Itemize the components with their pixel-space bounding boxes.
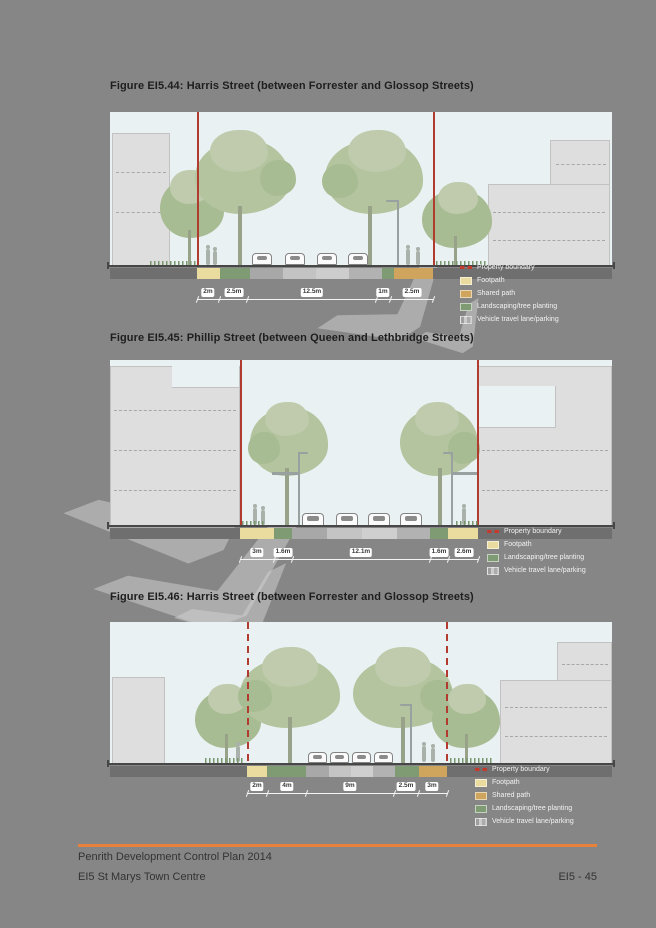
dimension-label: 2.5m bbox=[403, 288, 422, 297]
building-floor-line bbox=[116, 172, 166, 173]
legend-label: Shared path bbox=[492, 792, 530, 799]
tree-trunk bbox=[401, 717, 405, 764]
car bbox=[330, 752, 349, 763]
car bbox=[374, 752, 393, 763]
building-right-lower bbox=[488, 184, 610, 267]
dimension-label: 3m bbox=[425, 782, 438, 791]
tree-canopy bbox=[262, 647, 318, 687]
building-floor-line bbox=[505, 707, 607, 708]
legend-swatch-vehicle-lane bbox=[475, 818, 487, 826]
car bbox=[308, 752, 327, 763]
building-floor-line bbox=[482, 490, 608, 491]
property-boundary-line bbox=[477, 360, 479, 527]
dimension-label: 2.5m bbox=[397, 782, 416, 791]
legend-row: Shared path bbox=[460, 289, 559, 298]
legend-swatch-landscaping bbox=[460, 303, 472, 311]
building-floor-line bbox=[562, 664, 608, 665]
legend-label: Property boundary bbox=[504, 528, 562, 535]
legend-row: Footpath bbox=[475, 778, 574, 787]
footpath-band bbox=[448, 528, 478, 539]
property-boundary-line bbox=[446, 622, 448, 765]
dimension-label: 3m bbox=[250, 548, 263, 557]
footer-rule bbox=[78, 844, 597, 847]
tree-canopy bbox=[348, 130, 406, 172]
legend-label: Property boundary bbox=[477, 264, 535, 271]
legend-row: Footpath bbox=[460, 276, 559, 285]
pedestrian bbox=[431, 748, 435, 762]
footpath-band bbox=[247, 766, 267, 777]
tree-trunk bbox=[288, 717, 292, 764]
landscaping-band bbox=[267, 766, 306, 777]
legend-swatch-shared-path bbox=[475, 792, 487, 800]
dimension-line bbox=[240, 559, 478, 560]
property-boundary-line bbox=[197, 112, 199, 267]
legend-row: Footpath bbox=[487, 540, 586, 549]
street-light-arm bbox=[298, 452, 308, 454]
tree-canopy bbox=[248, 432, 280, 464]
road-band bbox=[349, 268, 382, 279]
street-light-pole bbox=[410, 704, 412, 764]
legend-row: Vehicle travel lane/parking bbox=[460, 315, 559, 324]
legend-label: Landscaping/tree planting bbox=[477, 303, 557, 310]
legend-label: Property boundary bbox=[492, 766, 550, 773]
legend-label: Footpath bbox=[477, 277, 505, 284]
pedestrian bbox=[206, 249, 210, 265]
tree-canopy bbox=[210, 130, 268, 172]
street-light-pole bbox=[451, 452, 453, 526]
legend-swatch-footpath bbox=[475, 779, 487, 787]
car bbox=[352, 752, 371, 763]
legend-row: Property boundary bbox=[487, 527, 586, 536]
car bbox=[317, 253, 337, 265]
legend-row: Vehicle travel lane/parking bbox=[475, 817, 574, 826]
legend-row: Landscaping/tree planting bbox=[487, 553, 586, 562]
dimension-label: 12.1m bbox=[350, 548, 372, 557]
legend-swatch-shared-path bbox=[460, 290, 472, 298]
dimension-label: 12.5m bbox=[301, 288, 323, 297]
building-floor-line bbox=[114, 490, 236, 491]
legend-row: Vehicle travel lane/parking bbox=[487, 566, 586, 575]
street-light-bracket bbox=[452, 472, 478, 475]
figure-3-legend: Property boundary Footpath Shared path L… bbox=[475, 765, 574, 830]
road-band bbox=[351, 766, 373, 777]
tree-canopy bbox=[238, 680, 272, 712]
building-left-setback bbox=[172, 366, 240, 388]
building-floor-line bbox=[116, 212, 166, 213]
dimension-label: 2.5m bbox=[225, 288, 244, 297]
building-floor-line bbox=[493, 240, 605, 241]
building-floor-line bbox=[556, 164, 606, 165]
tree-canopy bbox=[438, 182, 478, 214]
road-band bbox=[327, 528, 362, 539]
street-light-pole bbox=[397, 200, 399, 266]
figure-2-cross-section bbox=[110, 360, 612, 540]
tree-canopy bbox=[322, 164, 358, 198]
legend-row: Property boundary bbox=[460, 263, 559, 272]
tree-canopy bbox=[265, 402, 309, 436]
road-band bbox=[373, 766, 395, 777]
dimension-label: 1.6m bbox=[430, 548, 449, 557]
ground-end-tick bbox=[107, 262, 109, 269]
dimension-line bbox=[197, 299, 433, 300]
legend-swatch-landscaping bbox=[475, 805, 487, 813]
landscaping-band bbox=[430, 528, 448, 539]
legend-row: Property boundary bbox=[475, 765, 574, 774]
street-light-arm bbox=[400, 704, 411, 706]
tree-trunk bbox=[285, 468, 289, 526]
legend-label: Vehicle travel lane/parking bbox=[504, 567, 586, 574]
dimension-tick bbox=[446, 790, 450, 797]
footer-section-title: EI5 St Marys Town Centre bbox=[78, 871, 206, 883]
road-band bbox=[362, 528, 397, 539]
dimension-label: 1m bbox=[376, 288, 389, 297]
property-boundary-line bbox=[240, 360, 242, 527]
figure-1-title: Figure EI5.44: Harris Street (between Fo… bbox=[110, 80, 590, 92]
car bbox=[285, 253, 305, 265]
legend-label: Shared path bbox=[477, 290, 515, 297]
building-floor-line bbox=[505, 736, 607, 737]
road-band bbox=[250, 268, 283, 279]
dimension-label: 1.6m bbox=[274, 548, 293, 557]
footer-page-number: EI5 - 45 bbox=[480, 871, 597, 883]
pedestrian bbox=[422, 746, 426, 762]
footpath-band bbox=[240, 528, 274, 539]
street-light-pole bbox=[298, 452, 300, 526]
legend-label: Landscaping/tree planting bbox=[492, 805, 572, 812]
legend-swatch-landscaping bbox=[487, 554, 499, 562]
legend-swatch-property-boundary bbox=[460, 266, 472, 269]
dimension-label: 4m bbox=[280, 782, 293, 791]
landscaping-band bbox=[220, 268, 250, 279]
building-floor-line bbox=[114, 450, 236, 451]
legend-label: Footpath bbox=[492, 779, 520, 786]
ground-end-tick bbox=[613, 522, 615, 529]
car bbox=[348, 253, 368, 265]
figure-2-legend: Property boundary Footpath Landscaping/t… bbox=[487, 527, 586, 579]
building-right-setback bbox=[478, 386, 556, 428]
tree-canopy bbox=[260, 160, 296, 196]
ground-end-tick bbox=[613, 760, 615, 767]
tree-trunk bbox=[438, 468, 442, 526]
road-band bbox=[306, 766, 329, 777]
building-floor-line bbox=[493, 212, 605, 213]
legend-swatch-footpath bbox=[487, 541, 499, 549]
legend-swatch-property-boundary bbox=[487, 530, 499, 533]
legend-label: Landscaping/tree planting bbox=[504, 554, 584, 561]
legend-label: Footpath bbox=[504, 541, 532, 548]
street-light-bracket bbox=[272, 472, 298, 475]
car bbox=[252, 253, 272, 265]
footer-doc-title: Penrith Development Control Plan 2014 bbox=[78, 851, 272, 863]
cyclist bbox=[416, 251, 420, 265]
legend-row: Shared path bbox=[475, 791, 574, 800]
building-left bbox=[110, 366, 240, 527]
pedestrian bbox=[213, 251, 217, 265]
figure-3-title: Figure EI5.46: Harris Street (between Fo… bbox=[110, 591, 590, 603]
figure-1-cross-section bbox=[110, 112, 612, 280]
legend-swatch-vehicle-lane bbox=[460, 316, 472, 324]
ground-end-tick bbox=[107, 522, 109, 529]
legend-swatch-vehicle-lane bbox=[487, 567, 499, 575]
dimension-label: 2.6m bbox=[455, 548, 474, 557]
ground-end-tick bbox=[107, 760, 109, 767]
dimension-tick bbox=[432, 296, 436, 303]
landscaping-band bbox=[382, 268, 394, 279]
road-band bbox=[329, 766, 351, 777]
shared-path-band bbox=[419, 766, 447, 777]
landscaping-band bbox=[274, 528, 292, 539]
property-boundary-line bbox=[433, 112, 435, 267]
property-boundary-line bbox=[247, 622, 249, 765]
building-floor-line bbox=[482, 450, 608, 451]
street-light-arm bbox=[386, 200, 398, 202]
legend-swatch-property-boundary bbox=[475, 768, 487, 771]
shared-path-band bbox=[394, 268, 433, 279]
building-right-lower bbox=[500, 680, 612, 765]
tree-trunk bbox=[368, 206, 372, 266]
building-floor-line bbox=[114, 410, 236, 411]
ground-end-tick bbox=[613, 262, 615, 269]
building-left bbox=[112, 677, 165, 765]
tree-canopy bbox=[375, 647, 431, 687]
legend-row: Landscaping/tree planting bbox=[475, 804, 574, 813]
road-band bbox=[397, 528, 430, 539]
street-light-arm bbox=[443, 452, 453, 454]
legend-row: Landscaping/tree planting bbox=[460, 302, 559, 311]
figure-3-cross-section bbox=[110, 622, 612, 782]
legend-label: Vehicle travel lane/parking bbox=[477, 316, 559, 323]
tree-trunk bbox=[238, 206, 242, 266]
tree-canopy bbox=[448, 432, 480, 464]
dimension-label: 9m bbox=[343, 782, 356, 791]
tree-canopy bbox=[448, 684, 486, 714]
road-band bbox=[283, 268, 316, 279]
dimension-tick bbox=[477, 556, 481, 563]
road-band bbox=[292, 528, 327, 539]
cyclist bbox=[406, 249, 410, 265]
figure-2-title: Figure EI5.45: Phillip Street (between Q… bbox=[110, 332, 590, 344]
road-band bbox=[316, 268, 349, 279]
figure-1-legend: Property boundary Footpath Shared path L… bbox=[460, 263, 559, 328]
landscaping-band bbox=[395, 766, 419, 777]
footpath-band bbox=[197, 268, 220, 279]
tree-canopy bbox=[415, 402, 459, 436]
dimension-label: 2m bbox=[201, 288, 214, 297]
legend-label: Vehicle travel lane/parking bbox=[492, 818, 574, 825]
dimension-label: 2m bbox=[250, 782, 263, 791]
document-page: { "page": { "background_color": "#868686… bbox=[0, 0, 656, 928]
legend-swatch-footpath bbox=[460, 277, 472, 285]
